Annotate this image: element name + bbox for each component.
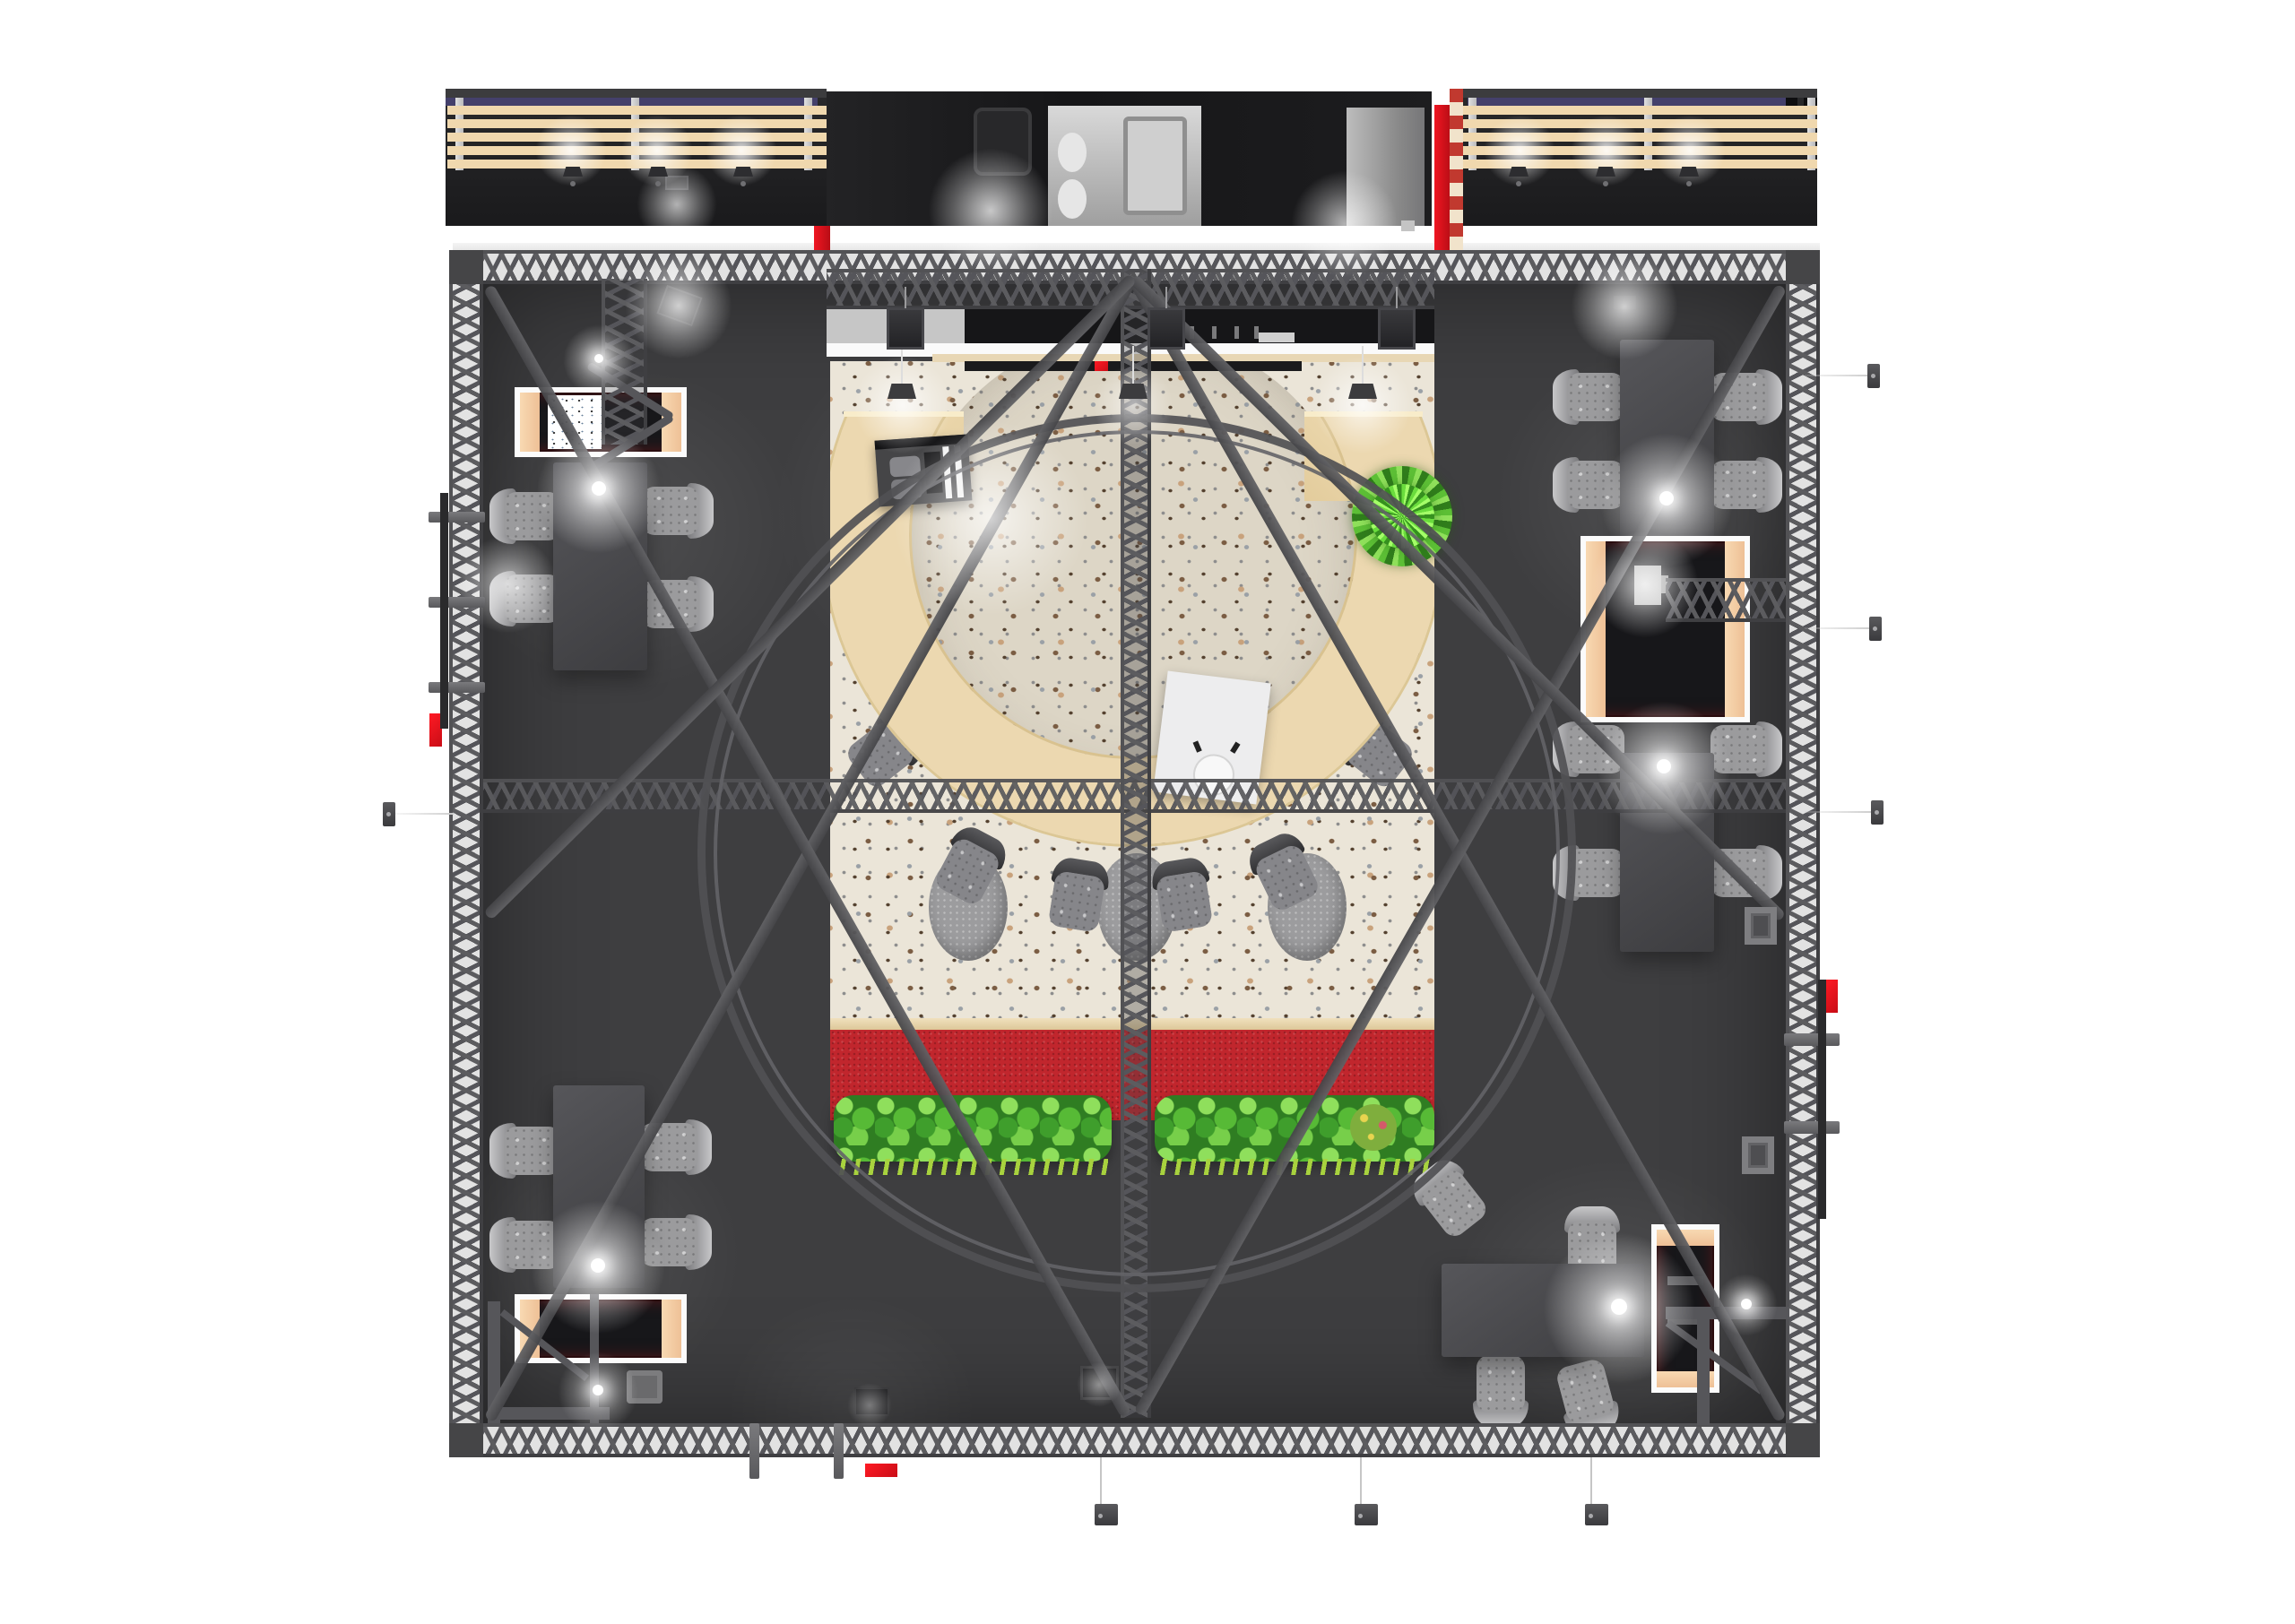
panel-purple-strip: [1468, 98, 1786, 106]
wood-slats-right: [1463, 106, 1817, 171]
slat-lamp-dot: [655, 181, 661, 186]
slat-lamp: [648, 167, 668, 177]
pendant-bulb: [1611, 1299, 1627, 1315]
dimension-tag: [1869, 617, 1882, 641]
slat-lamp: [733, 167, 753, 177]
pendant-bulb: [1741, 1299, 1752, 1309]
perimeter-truss-right: [1786, 250, 1820, 1457]
slat-lamp: [1679, 167, 1699, 177]
hanging-light-box: [1147, 307, 1185, 350]
hanging-tag: [1095, 1504, 1118, 1525]
wood-slats-left: [447, 106, 827, 171]
corner-truss-br-v: [1697, 1307, 1710, 1425]
counter-tray: [1259, 333, 1295, 342]
light-box-wire: [905, 287, 906, 308]
pendant-bulb: [594, 354, 603, 363]
slat-lamp: [1596, 167, 1615, 177]
pendant-bulb: [592, 481, 606, 496]
pendant-wire: [901, 346, 903, 385]
wall-stub-beam: [429, 512, 485, 523]
red-accent-mark: [865, 1464, 897, 1477]
floor-light-panel: [1742, 1136, 1774, 1174]
slat-lamp-dot: [1603, 181, 1608, 186]
wall-stub-beam: [429, 682, 485, 693]
slat-lamp: [563, 167, 583, 177]
red-accent-mark: [1095, 361, 1108, 371]
pendant-bulb: [591, 1258, 605, 1273]
office-chair: [637, 1214, 712, 1271]
slat-lamp-dot: [1686, 181, 1692, 186]
tag-leader-line: [1805, 375, 1867, 376]
sink-unit: [974, 108, 1032, 176]
office-chair: [1472, 1352, 1529, 1427]
pendant-box: [665, 176, 688, 190]
cabinet-truss-stub: [1666, 578, 1786, 622]
cooktop-unit: [1123, 117, 1187, 215]
office-chair: [1553, 456, 1628, 514]
burner-icon: [1058, 179, 1087, 219]
pendant-wire: [1362, 346, 1364, 385]
wall-stub-beam: [1784, 1033, 1840, 1046]
panel-cap: [446, 89, 827, 98]
dark-edge-bar: [1818, 980, 1826, 1219]
kitchen-zone: [827, 91, 1432, 226]
booth-render: [0, 0, 2295, 1624]
panel-dark-dash: [1786, 98, 1797, 106]
light-box-wire: [1396, 287, 1398, 308]
dimension-tag: [383, 802, 395, 826]
fridge-notch: [1401, 220, 1415, 231]
tag-hang-line: [1590, 1457, 1592, 1504]
wall-stub-beam: [1784, 1121, 1840, 1134]
office-chair: [638, 482, 714, 540]
slat-lamp-dot: [740, 181, 746, 186]
display-cabinet: [1581, 536, 1750, 722]
burner-icon: [1058, 133, 1087, 172]
truss-corner: [449, 250, 483, 284]
pendant-bulb: [593, 1385, 603, 1395]
dimension-tag: [1867, 364, 1880, 388]
red-cream-checker-strip: [1450, 89, 1463, 271]
slat-lamp-dot: [570, 181, 576, 186]
pendant-bulb: [1657, 759, 1671, 773]
tag-leader-line: [1805, 627, 1869, 629]
hanging-light-box: [887, 307, 924, 350]
small-stool: [627, 1370, 663, 1404]
tag-leader-line: [1805, 811, 1871, 813]
wall-stub-beam: [429, 597, 485, 608]
perimeter-truss-bottom: [449, 1423, 1820, 1457]
truss-tower: [602, 279, 647, 445]
tag-hang-line: [1100, 1457, 1102, 1504]
dimension-tag: [1871, 800, 1884, 825]
pendant-wire: [1132, 346, 1134, 385]
light-box-wire: [1165, 287, 1167, 308]
pendant-lamp: [888, 384, 916, 399]
counter-wing-highlight: [1304, 411, 1423, 417]
kitchen-counter: [1048, 106, 1201, 226]
dark-edge-bar: [440, 493, 448, 729]
fridge-unit: [1347, 108, 1425, 226]
pendant-lamp: [1348, 384, 1377, 399]
spotlight-box: [1614, 296, 1636, 309]
hanging-tag: [1355, 1504, 1378, 1525]
wall-stub-post: [834, 1423, 844, 1479]
tag-leader-line: [394, 813, 454, 815]
perimeter-truss-left: [449, 250, 483, 1457]
counter-wing-highlight: [844, 411, 964, 417]
slat-lamp: [1509, 167, 1529, 177]
pendant-lamp: [1119, 384, 1147, 399]
office-chair: [1707, 721, 1782, 778]
wall-stub-post: [749, 1423, 759, 1479]
office-chair: [1707, 456, 1782, 514]
pendant-bulb: [1659, 491, 1674, 505]
office-chair: [1553, 368, 1628, 426]
hanging-tag: [1585, 1504, 1608, 1525]
cabinet-monitor: [1634, 566, 1661, 605]
floor-box: [854, 1387, 889, 1416]
slat-lamp-dot: [1516, 181, 1521, 186]
floor-light-panel: [1745, 907, 1777, 945]
red-accent-mark: [1824, 980, 1838, 1013]
tag-hang-line: [1360, 1457, 1362, 1504]
corner-truss-bl-t: [590, 1294, 599, 1423]
panel-cap: [1463, 89, 1817, 98]
hanging-light-box: [1378, 307, 1416, 350]
